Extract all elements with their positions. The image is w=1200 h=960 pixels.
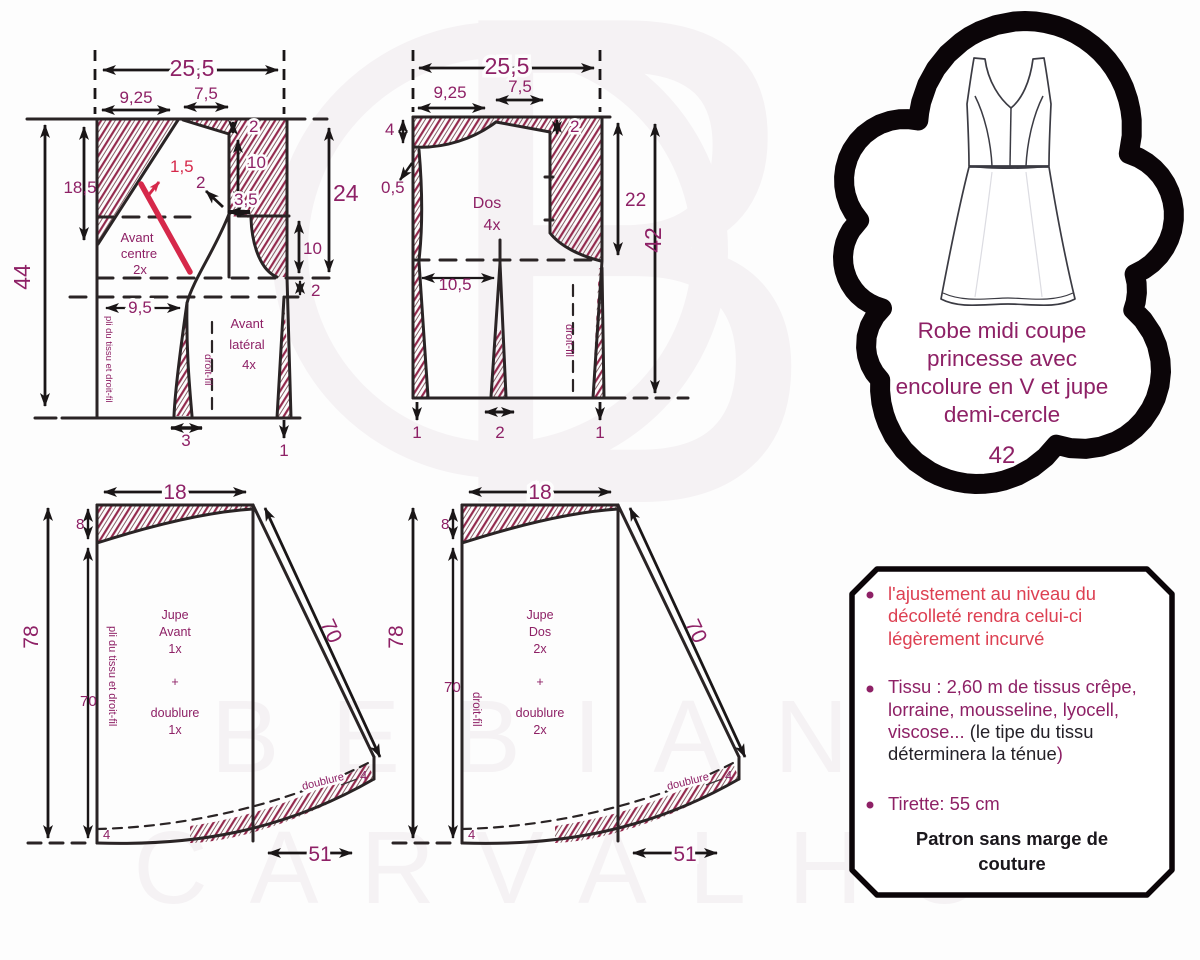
svg-text:2: 2 xyxy=(196,173,205,192)
svg-text:Dos: Dos xyxy=(473,195,501,212)
svg-text:3,5: 3,5 xyxy=(234,190,258,209)
svg-text:42: 42 xyxy=(989,442,1016,469)
svg-text:droit-fil: droit-fil xyxy=(470,692,482,727)
svg-text:8: 8 xyxy=(76,516,84,533)
svg-text:doublure: doublure xyxy=(516,706,565,720)
svg-text:2: 2 xyxy=(495,423,504,442)
svg-text:Tissu : 2,60 m de tissus crêpe: Tissu : 2,60 m de tissus crêpe, xyxy=(888,676,1137,697)
svg-text:18: 18 xyxy=(163,481,186,504)
svg-text:viscose... (le tipe du tissu: viscose... (le tipe du tissu xyxy=(888,721,1093,742)
svg-text:18,5: 18,5 xyxy=(63,178,96,197)
svg-text:droit-fil: droit-fil xyxy=(563,324,575,357)
svg-text:Tirette: 55 cm: Tirette: 55 cm xyxy=(888,793,1000,814)
svg-text:1: 1 xyxy=(279,441,288,460)
svg-text:1x: 1x xyxy=(168,642,182,656)
svg-text:pli du tissu et droit-fil: pli du tissu et droit-fil xyxy=(103,316,114,403)
svg-text:25,5: 25,5 xyxy=(485,53,530,79)
svg-text:légèrement incurvé: légèrement incurvé xyxy=(888,628,1044,649)
svg-text:2x: 2x xyxy=(533,723,547,737)
svg-text:4: 4 xyxy=(360,768,367,783)
svg-text:couture: couture xyxy=(978,853,1045,874)
svg-text:51: 51 xyxy=(308,843,331,866)
svg-text:+: + xyxy=(171,675,178,689)
svg-text:pli du tissu et droit-fil: pli du tissu et droit-fil xyxy=(106,626,118,726)
svg-text:centre: centre xyxy=(121,246,157,261)
svg-text:1: 1 xyxy=(412,423,421,442)
svg-text:42: 42 xyxy=(640,227,666,253)
svg-text:78: 78 xyxy=(20,625,43,648)
svg-text:B: B xyxy=(430,0,822,650)
svg-text:10,5: 10,5 xyxy=(438,275,471,294)
svg-text:4: 4 xyxy=(103,827,110,842)
svg-text:Avant: Avant xyxy=(230,316,263,331)
svg-text:2x: 2x xyxy=(533,642,547,656)
svg-text:+: + xyxy=(536,675,543,689)
svg-text:1: 1 xyxy=(595,423,604,442)
svg-text:4: 4 xyxy=(385,120,394,139)
svg-text:0,5: 0,5 xyxy=(381,178,405,197)
svg-text:4x: 4x xyxy=(242,357,256,372)
svg-text:10: 10 xyxy=(303,239,322,258)
svg-text:2x: 2x xyxy=(133,262,147,277)
svg-text:2: 2 xyxy=(311,281,320,300)
svg-text:22: 22 xyxy=(625,190,646,211)
svg-text:3: 3 xyxy=(181,431,190,450)
svg-text:Patron sans marge de: Patron sans marge de xyxy=(916,828,1108,849)
svg-text:Avant: Avant xyxy=(159,625,191,639)
svg-text:9,25: 9,25 xyxy=(433,83,466,102)
svg-text:7,5: 7,5 xyxy=(508,77,532,96)
svg-text:2: 2 xyxy=(249,117,258,136)
svg-text:70: 70 xyxy=(444,679,461,696)
svg-text:Robe midi coupe: Robe midi coupe xyxy=(918,318,1087,343)
svg-text:demi-cercle: demi-cercle xyxy=(944,402,1060,427)
svg-text:1,5: 1,5 xyxy=(170,157,194,176)
svg-text:droit-fil: droit-fil xyxy=(202,354,214,386)
svg-text:70: 70 xyxy=(80,693,97,710)
svg-text:9,25: 9,25 xyxy=(119,88,152,107)
svg-text:24: 24 xyxy=(333,180,359,206)
svg-text:princesse avec: princesse avec xyxy=(927,346,1077,371)
svg-text:encolure en V et jupe: encolure en V et jupe xyxy=(896,374,1109,399)
svg-text:Jupe: Jupe xyxy=(526,608,553,622)
svg-text:l'ajustement au niveau du: l'ajustement au niveau du xyxy=(888,583,1096,604)
svg-text:9,5: 9,5 xyxy=(128,298,152,317)
svg-text:Avant: Avant xyxy=(120,230,153,245)
svg-text:25,5: 25,5 xyxy=(170,55,215,81)
svg-text:10: 10 xyxy=(247,153,266,172)
svg-text:lorraine, mousseline, lyocell,: lorraine, mousseline, lyocell, xyxy=(888,699,1119,720)
svg-text:Dos: Dos xyxy=(529,625,551,639)
svg-text:1x: 1x xyxy=(168,723,182,737)
svg-text:7,5: 7,5 xyxy=(194,84,218,103)
svg-text:2: 2 xyxy=(570,117,579,136)
svg-text:4x: 4x xyxy=(484,217,501,234)
svg-text:déterminera la ténue): déterminera la ténue) xyxy=(888,743,1063,764)
svg-text:Jupe: Jupe xyxy=(161,608,188,622)
svg-text:doublure: doublure xyxy=(151,706,200,720)
svg-text:latéral: latéral xyxy=(229,337,265,352)
svg-text:décolleté rendra celui-ci: décolleté rendra celui-ci xyxy=(888,605,1082,626)
svg-text:44: 44 xyxy=(9,264,35,290)
